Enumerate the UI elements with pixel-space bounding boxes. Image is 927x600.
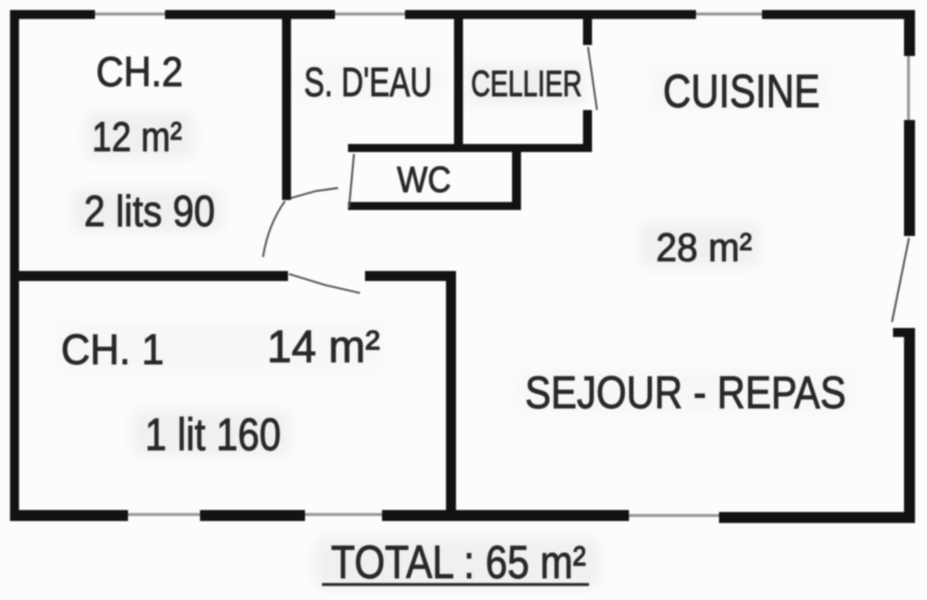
svg-text:28 m²: 28 m² [656, 226, 752, 270]
svg-text:S. D'EAU: S. D'EAU [304, 59, 432, 105]
svg-text:CH. 1: CH. 1 [61, 326, 164, 374]
svg-text:CH.2: CH.2 [96, 48, 183, 95]
svg-text:TOTAL : 65 m²: TOTAL : 65 m² [331, 536, 586, 588]
svg-text:12 m²: 12 m² [92, 113, 182, 160]
svg-text:SEJOUR - REPAS: SEJOUR - REPAS [525, 367, 846, 418]
svg-text:14 m²: 14 m² [267, 321, 380, 372]
svg-text:1 lit 160: 1 lit 160 [145, 409, 281, 460]
svg-text:CELLIER: CELLIER [471, 63, 582, 104]
svg-text:WC: WC [397, 159, 451, 200]
svg-text:CUISINE: CUISINE [663, 65, 820, 117]
svg-text:2 lits 90: 2 lits 90 [84, 187, 215, 236]
